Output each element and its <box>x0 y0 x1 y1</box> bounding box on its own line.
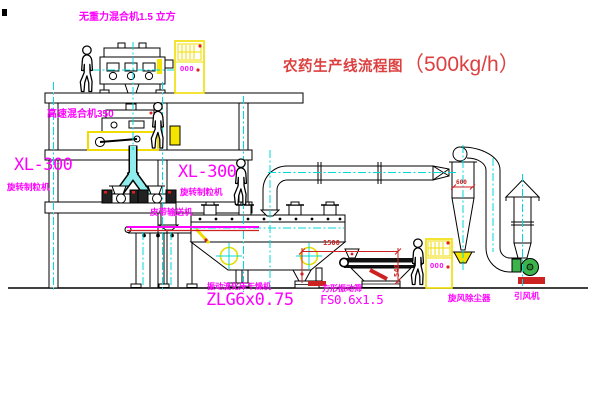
label-high-speed-mixer: 高速混合机350 <box>47 110 114 120</box>
label-gravity-mixer: 无重力混合机1.5 立方 <box>79 13 176 23</box>
label-dryer-model: ZLG6x0.75 <box>206 292 294 309</box>
label-granulator-right-model: XL-300 <box>178 164 236 181</box>
diagram-title-text: 农药生产线流程图 <box>283 59 403 75</box>
dim-sieve-length: 1500 <box>323 240 340 247</box>
indicator-light-icon <box>446 265 449 268</box>
induced-draft-fan <box>512 259 545 285</box>
edge-artifact <box>2 9 7 16</box>
label-sieve-model: FS0.6x1.5 <box>320 294 383 307</box>
dim-sieve-height: 548 <box>394 264 401 277</box>
indicator-light-icon <box>198 44 201 47</box>
panel-top-display: 000 <box>180 65 194 73</box>
label-cyclone: 旋风除尘器 <box>448 294 491 303</box>
panel-bottom-display: 000 <box>430 262 444 270</box>
label-belt-conveyor: 皮带输送机 <box>150 208 193 217</box>
indicator-light-icon <box>196 68 199 71</box>
label-granulator-right-name: 旋转制粒机 <box>180 188 223 197</box>
label-granulator-left-model: XL-300 <box>14 157 72 174</box>
diagram-title-capacity: （500kg/h） <box>403 53 520 76</box>
diagram-title: 农药生产线流程图（500kg/h） <box>283 48 520 78</box>
label-granulator-left-name: 旋转制粒机 <box>7 183 50 192</box>
diagram-canvas: 农药生产线流程图（500kg/h） 无重力混合机1.5 立方 高速混合机350 … <box>0 0 600 403</box>
person-icon <box>80 46 92 91</box>
person-icon <box>411 239 423 284</box>
label-fan: 引风机 <box>514 292 540 301</box>
dim-cyclone-width: 600 <box>456 180 467 186</box>
indicator-light-icon <box>446 241 449 244</box>
